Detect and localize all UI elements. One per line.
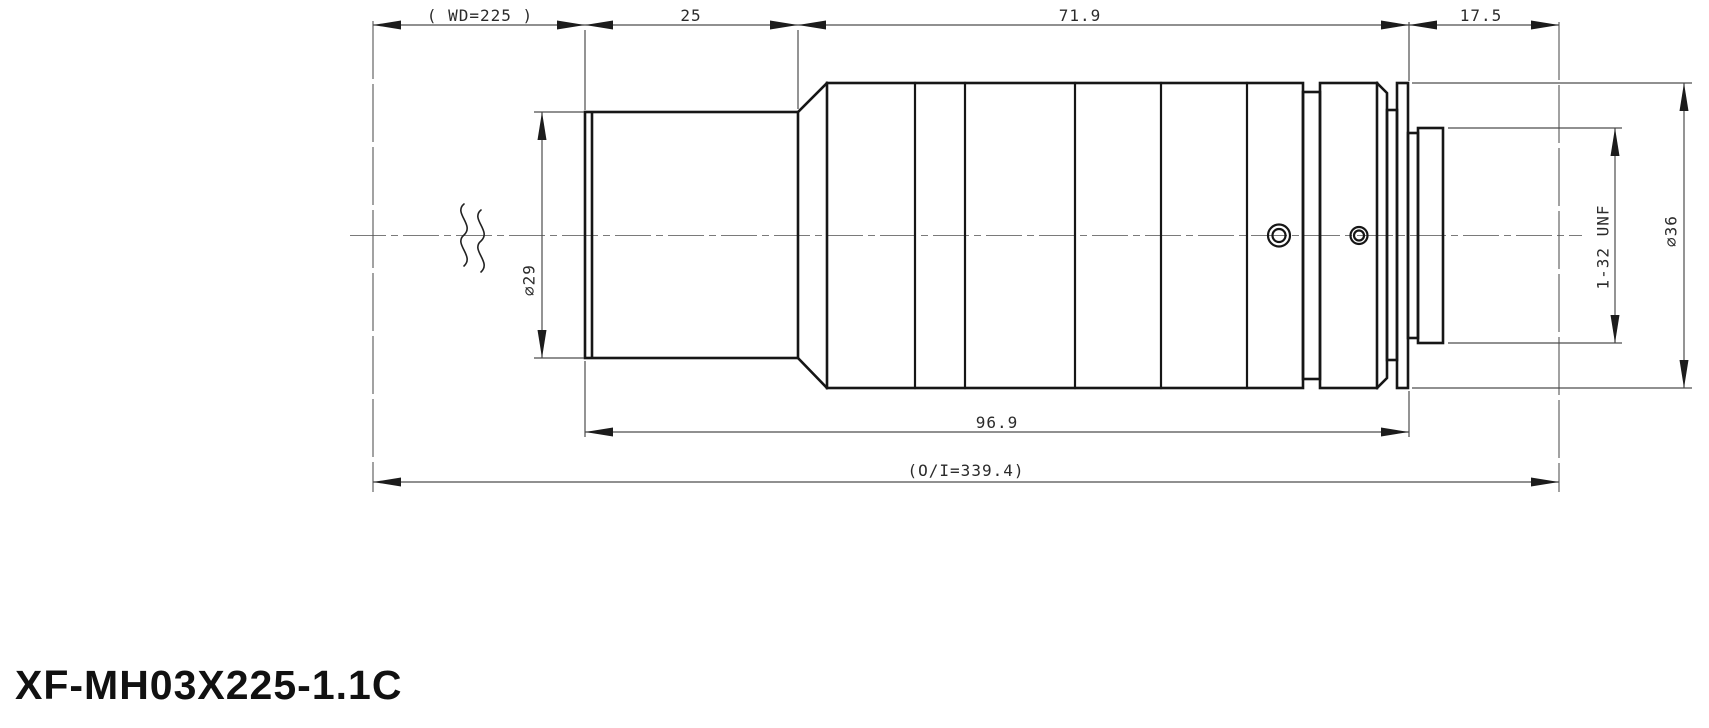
drawing-canvas: ( WD=225 ) 25 71.9 17.5 96.9 (O/I=339.4)… [0,0,1709,728]
taper-top-edge [798,83,827,112]
label-front-diameter: ⌀29 [520,264,539,296]
label-body-length: 96.9 [976,413,1019,432]
label-mid-length: 71.9 [1059,6,1102,25]
taper-bottom-edge [798,358,827,388]
label-overall-length: (O/I=339.4) [908,461,1025,480]
label-working-distance: ( WD=225 ) [427,6,533,25]
break-symbol [461,204,484,272]
label-mount-thread: 1-32 UNF [1594,204,1613,289]
lens-technical-drawing [0,0,1709,728]
label-flange-distance: 17.5 [1460,6,1503,25]
label-rear-diameter: ⌀36 [1662,215,1681,247]
part-number-title: XF-MH03X225-1.1C [15,662,402,709]
label-front-length: 25 [680,6,701,25]
